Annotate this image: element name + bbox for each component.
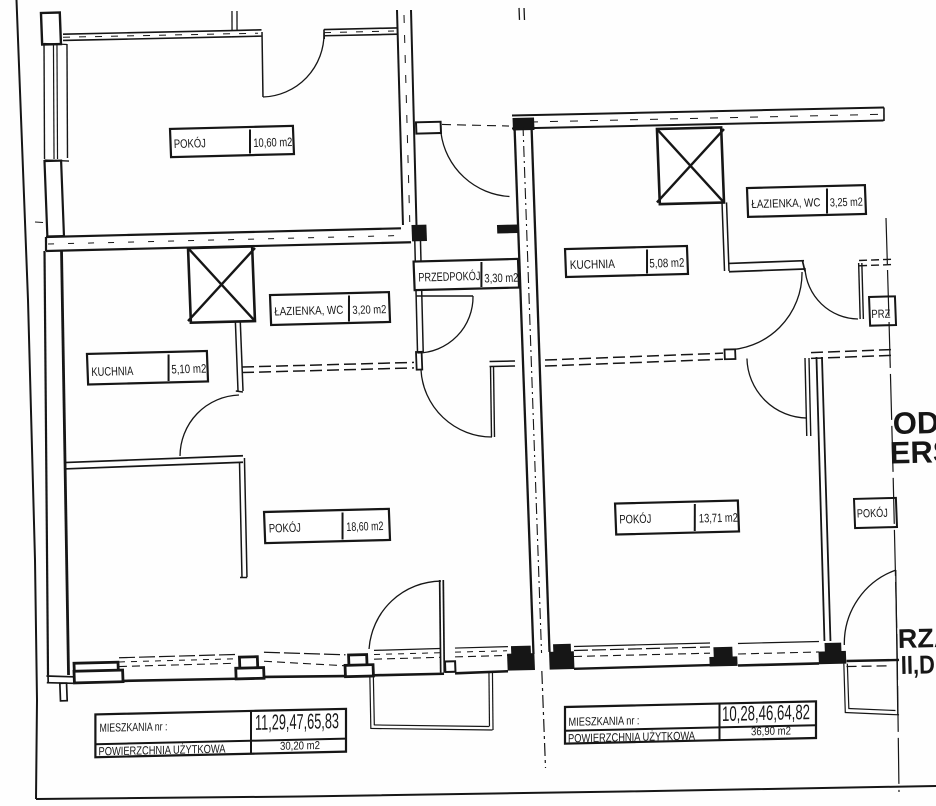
svg-text:ŁAZIENKA, WC: ŁAZIENKA, WC bbox=[751, 195, 821, 211]
svg-text:13,71 m2: 13,71 m2 bbox=[699, 511, 739, 526]
svg-text:3,30 m2: 3,30 m2 bbox=[484, 271, 519, 286]
svg-text:10,60 m2: 10,60 m2 bbox=[253, 135, 293, 150]
svg-text:18,60 m2: 18,60 m2 bbox=[346, 519, 384, 534]
svg-text:POWIERZCHNIA UŻYTKOWA: POWIERZCHNIA UŻYTKOWA bbox=[568, 729, 695, 746]
svg-text:II,D: II,D bbox=[900, 649, 935, 680]
svg-text:ŁAZIENKA, WC: ŁAZIENKA, WC bbox=[274, 303, 344, 319]
svg-text:MIESZKANIA nr :: MIESZKANIA nr : bbox=[569, 713, 640, 729]
svg-text:POKÓJ: POKÓJ bbox=[174, 135, 207, 151]
svg-text:PRZEDPOKÓJ: PRZEDPOKÓJ bbox=[418, 268, 481, 285]
svg-text:36,90 m2: 36,90 m2 bbox=[751, 725, 791, 738]
svg-text:ERS: ERS bbox=[889, 434, 936, 470]
svg-text:KUCHNIA: KUCHNIA bbox=[91, 364, 134, 379]
svg-text:3,20 m2: 3,20 m2 bbox=[352, 302, 387, 317]
svg-text:KUCHNIA: KUCHNIA bbox=[570, 257, 616, 272]
svg-text:POKÓJ: POKÓJ bbox=[269, 520, 302, 536]
svg-text:POKÓJ: POKÓJ bbox=[619, 511, 652, 527]
svg-text:POWIERZCHNIA UŻYTKOWA: POWIERZCHNIA UŻYTKOWA bbox=[99, 742, 226, 759]
svg-text:MIESZKANIA nr :: MIESZKANIA nr : bbox=[100, 719, 168, 735]
svg-text:POKÓJ: POKÓJ bbox=[857, 506, 889, 521]
svg-text:11,29,47,65,83: 11,29,47,65,83 bbox=[255, 709, 339, 735]
svg-text:3,25 m2: 3,25 m2 bbox=[830, 195, 864, 210]
svg-text:5,10 m2: 5,10 m2 bbox=[171, 362, 207, 377]
svg-text:30,20 m2: 30,20 m2 bbox=[280, 740, 320, 753]
svg-text:PRZ: PRZ bbox=[871, 307, 891, 321]
svg-text:5,08 m2: 5,08 m2 bbox=[649, 256, 685, 271]
svg-text:10,28,46,64,82: 10,28,46,64,82 bbox=[722, 701, 810, 726]
